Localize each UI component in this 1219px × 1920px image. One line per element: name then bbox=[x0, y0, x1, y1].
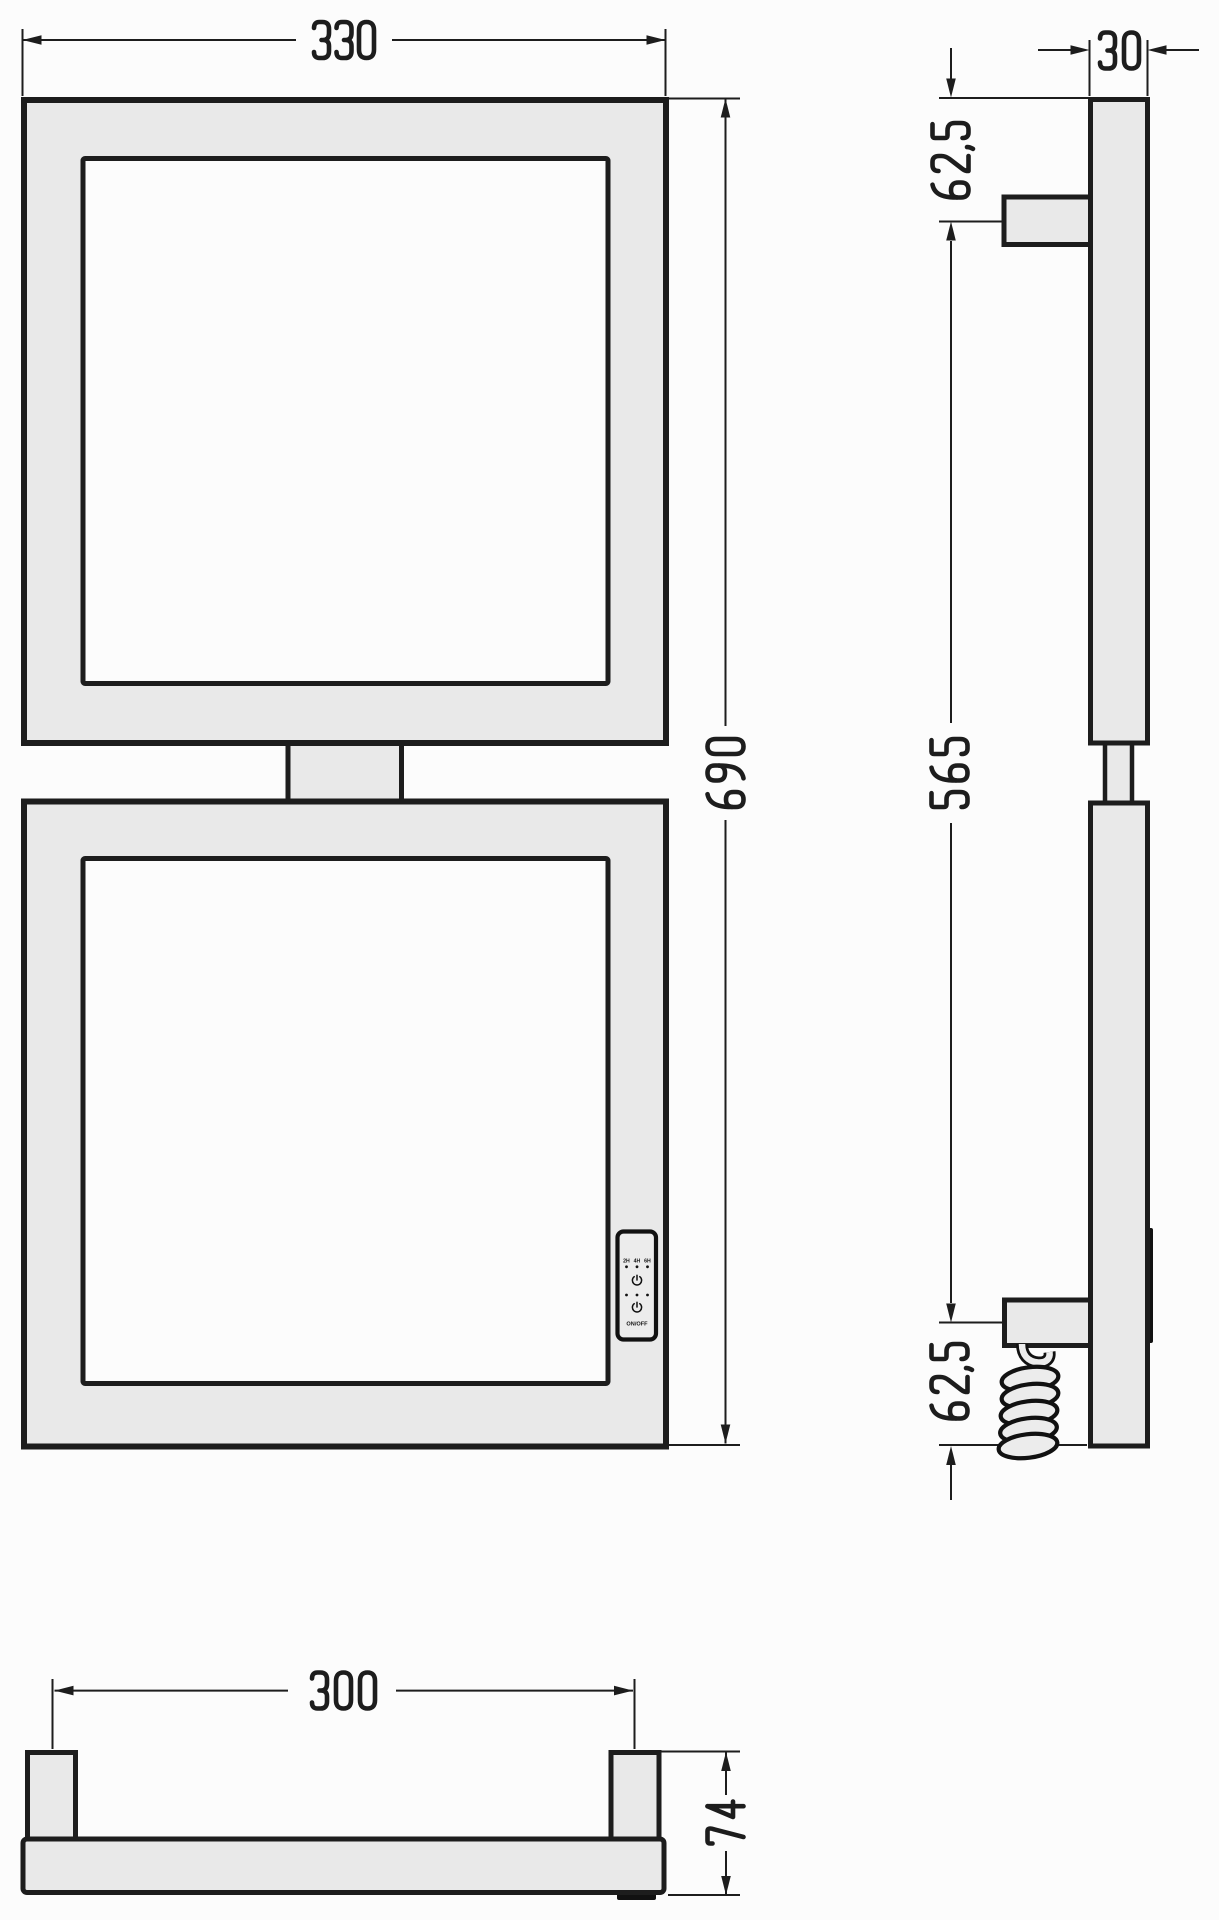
svg-text:2H: 2H bbox=[623, 1259, 630, 1265]
svg-text:4H: 4H bbox=[634, 1259, 641, 1265]
svg-text:6H: 6H bbox=[644, 1259, 651, 1265]
svg-text:ON/OFF: ON/OFF bbox=[626, 1322, 648, 1328]
